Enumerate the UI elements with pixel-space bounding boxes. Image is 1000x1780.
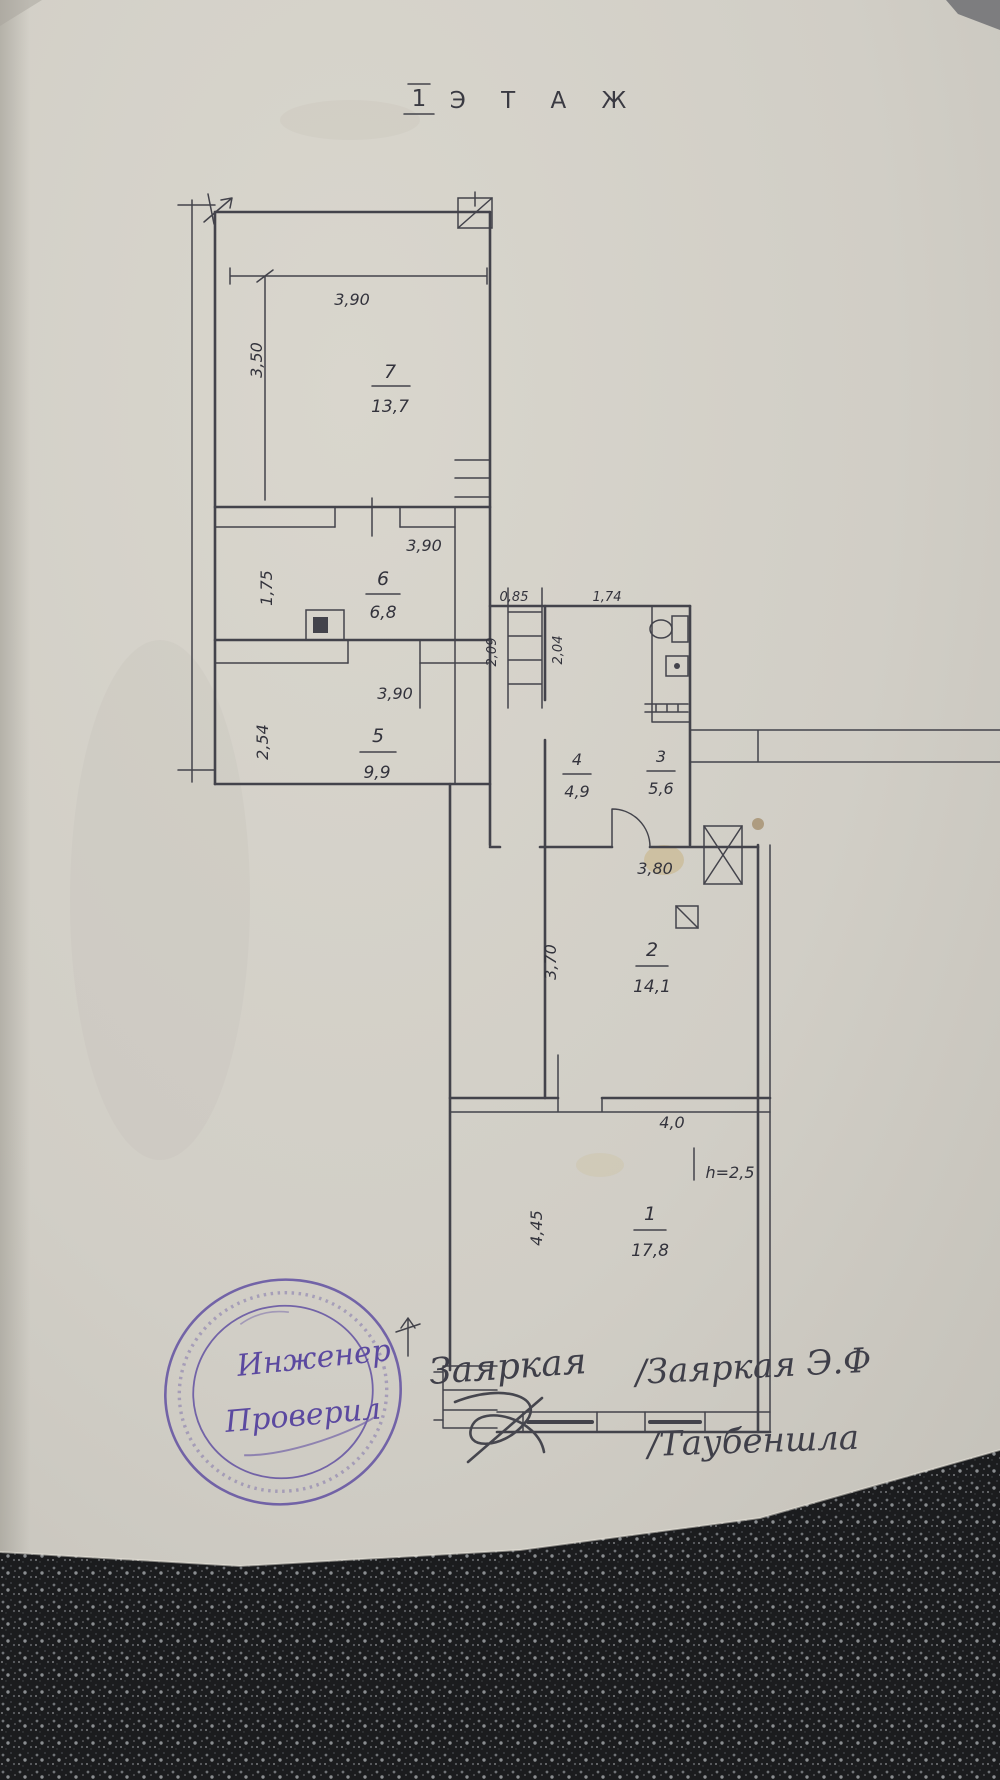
dim-room3-height: 2,04 (551, 636, 566, 665)
room2-area: 14,1 (633, 977, 671, 997)
room4-number: 4 (572, 750, 582, 769)
dim-room1-width: 4,0 (659, 1113, 684, 1132)
dim-room6-height: 1,75 (257, 570, 276, 606)
photo-of-floor-plan: 1 Э Т А Ж (0, 0, 1000, 1780)
room6-number: 6 (377, 568, 389, 590)
room2-number: 2 (646, 939, 658, 961)
ceiling-height-note: h=2,5 (706, 1163, 755, 1182)
paper-mottle (70, 640, 250, 1160)
dim-room2-height: 3,70 (541, 944, 560, 980)
room5-area: 9,9 (363, 763, 390, 783)
handwritten-name-right-2: /Таубеншла (644, 1418, 860, 1465)
dim-room5-height: 2,54 (253, 724, 272, 760)
dim-room5-width: 3,90 (377, 684, 413, 703)
dim-room7-width: 3,90 (334, 290, 370, 309)
paper-edge-shadow (0, 0, 30, 1780)
dim-room4-width: 0,85 (500, 590, 529, 605)
room4-area: 4,9 (564, 782, 589, 801)
dim-room3-width: 1,74 (593, 590, 622, 605)
floor-plan-sheet: 1 Э Т А Ж (0, 0, 1000, 1780)
room3-area: 5,6 (648, 779, 673, 798)
paper-spot (752, 818, 764, 830)
room1-number: 1 (644, 1203, 656, 1225)
title-floor-number: 1 (412, 86, 427, 112)
dim-room4-height: 2,09 (485, 638, 500, 667)
paper-stain (576, 1153, 624, 1177)
dim-room6-width: 3,90 (406, 536, 442, 555)
paper-stain (280, 100, 420, 140)
room3-number: 3 (656, 747, 666, 766)
room7-area: 13,7 (371, 397, 409, 417)
dim-room1-height: 4,45 (527, 1210, 546, 1246)
title-floor-word: Э Т А Ж (450, 88, 641, 114)
room5-number: 5 (372, 725, 384, 747)
dim-room2-width: 3,80 (637, 859, 673, 878)
room7-number: 7 (384, 361, 396, 383)
dim-room7-height: 3,50 (247, 342, 266, 378)
room1-area: 17,8 (631, 1241, 669, 1261)
room6-area: 6,8 (369, 603, 396, 623)
